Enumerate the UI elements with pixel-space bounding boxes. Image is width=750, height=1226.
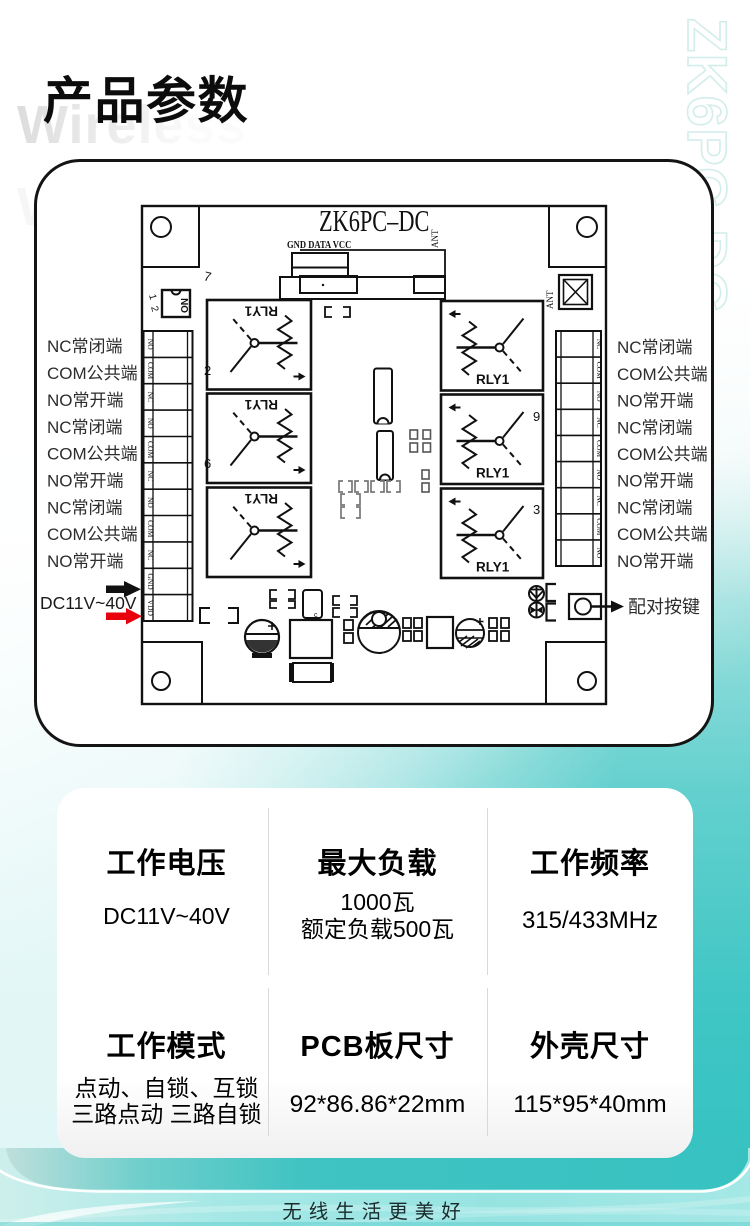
svg-text:NC常闭端: NC常闭端: [47, 418, 123, 437]
svg-text:NO: NO: [146, 418, 155, 429]
svg-text:NO常开端: NO常开端: [47, 391, 124, 410]
svg-text:NO: NO: [595, 547, 604, 558]
svg-text:1: 1: [146, 293, 158, 302]
svg-text:6: 6: [204, 456, 211, 471]
svg-text:c: c: [314, 612, 318, 619]
svg-text:NC常闭端: NC常闭端: [617, 338, 693, 357]
svg-text:2: 2: [148, 305, 160, 314]
svg-text:ANT: ANT: [545, 290, 555, 309]
svg-text:NO: NO: [146, 339, 155, 350]
svg-text:COM: COM: [595, 518, 604, 535]
svg-text:COM公共端: COM公共端: [617, 365, 708, 384]
svg-text:NC常闭端: NC常闭端: [47, 498, 123, 517]
svg-text:ZK6PC–DC: ZK6PC–DC: [319, 203, 429, 237]
svg-text:DC11V~40V: DC11V~40V: [40, 593, 137, 613]
svg-text:COM: COM: [595, 440, 604, 457]
svg-text:COM公共端: COM公共端: [47, 445, 138, 464]
svg-text:NO: NO: [595, 391, 604, 402]
svg-text:NO常开端: NO常开端: [617, 472, 694, 491]
svg-text:7: 7: [202, 268, 213, 284]
svg-text:NC: NC: [146, 392, 155, 402]
svg-text:COM: COM: [146, 520, 155, 537]
svg-text:NC: NC: [595, 417, 604, 427]
svg-text:配对按键: 配对按键: [628, 597, 700, 617]
svg-text:NO常开端: NO常开端: [617, 552, 694, 571]
svg-text:ANT: ANT: [430, 229, 440, 248]
svg-text:NO: NO: [146, 497, 155, 508]
svg-text:NC常闭端: NC常闭端: [617, 418, 693, 437]
svg-text:VDD: VDD: [146, 600, 155, 617]
svg-text:GND: GND: [146, 573, 155, 590]
svg-text:NC: NC: [146, 550, 155, 560]
svg-text:COM: COM: [146, 362, 155, 379]
svg-text:COM: COM: [146, 441, 155, 458]
svg-text:2: 2: [204, 363, 211, 378]
svg-text:NC: NC: [595, 339, 604, 349]
svg-text:NO常开端: NO常开端: [47, 552, 124, 571]
svg-text:NC常闭端: NC常闭端: [617, 498, 693, 517]
svg-text:COM公共端: COM公共端: [47, 364, 138, 383]
svg-text:ON: ON: [180, 298, 191, 313]
svg-text:NC: NC: [595, 495, 604, 505]
svg-text:COM公共端: COM公共端: [47, 525, 138, 544]
svg-text:COM公共端: COM公共端: [617, 525, 708, 544]
svg-text:NO: NO: [595, 469, 604, 480]
svg-text:NO常开端: NO常开端: [47, 471, 124, 490]
svg-text:NO常开端: NO常开端: [617, 392, 694, 411]
svg-text:3: 3: [533, 502, 540, 517]
svg-text:NC常闭端: NC常闭端: [47, 337, 123, 356]
svg-text:9: 9: [533, 409, 540, 424]
svg-text:NC: NC: [146, 471, 155, 481]
svg-text:COM公共端: COM公共端: [617, 445, 708, 464]
svg-text:COM: COM: [595, 362, 604, 379]
